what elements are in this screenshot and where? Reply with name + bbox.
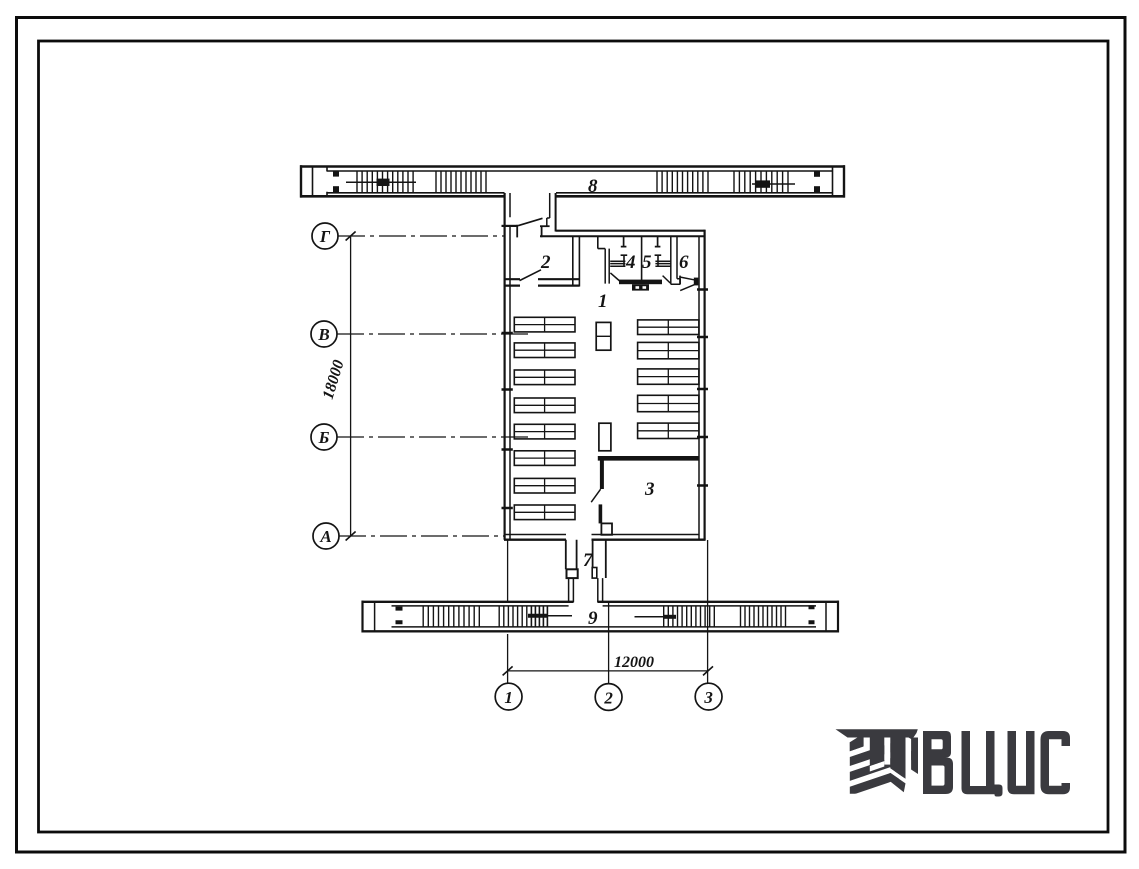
svg-text:3: 3 bbox=[644, 479, 655, 500]
svg-text:9: 9 bbox=[588, 608, 598, 629]
svg-text:12000: 12000 bbox=[614, 654, 654, 671]
svg-text:1: 1 bbox=[504, 688, 513, 707]
svg-text:А: А bbox=[319, 527, 331, 546]
svg-text:В: В bbox=[317, 325, 329, 344]
svg-text:Г: Г bbox=[319, 227, 331, 246]
svg-text:2: 2 bbox=[603, 688, 613, 707]
svg-text:8: 8 bbox=[588, 176, 598, 197]
svg-text:3: 3 bbox=[703, 688, 713, 707]
svg-text:Б: Б bbox=[318, 428, 330, 447]
svg-text:5: 5 bbox=[642, 252, 652, 273]
svg-text:4: 4 bbox=[625, 252, 636, 273]
svg-text:1: 1 bbox=[598, 291, 608, 312]
svg-text:7: 7 bbox=[583, 550, 594, 571]
svg-text:2: 2 bbox=[540, 252, 551, 273]
svg-text:6: 6 bbox=[679, 252, 689, 273]
